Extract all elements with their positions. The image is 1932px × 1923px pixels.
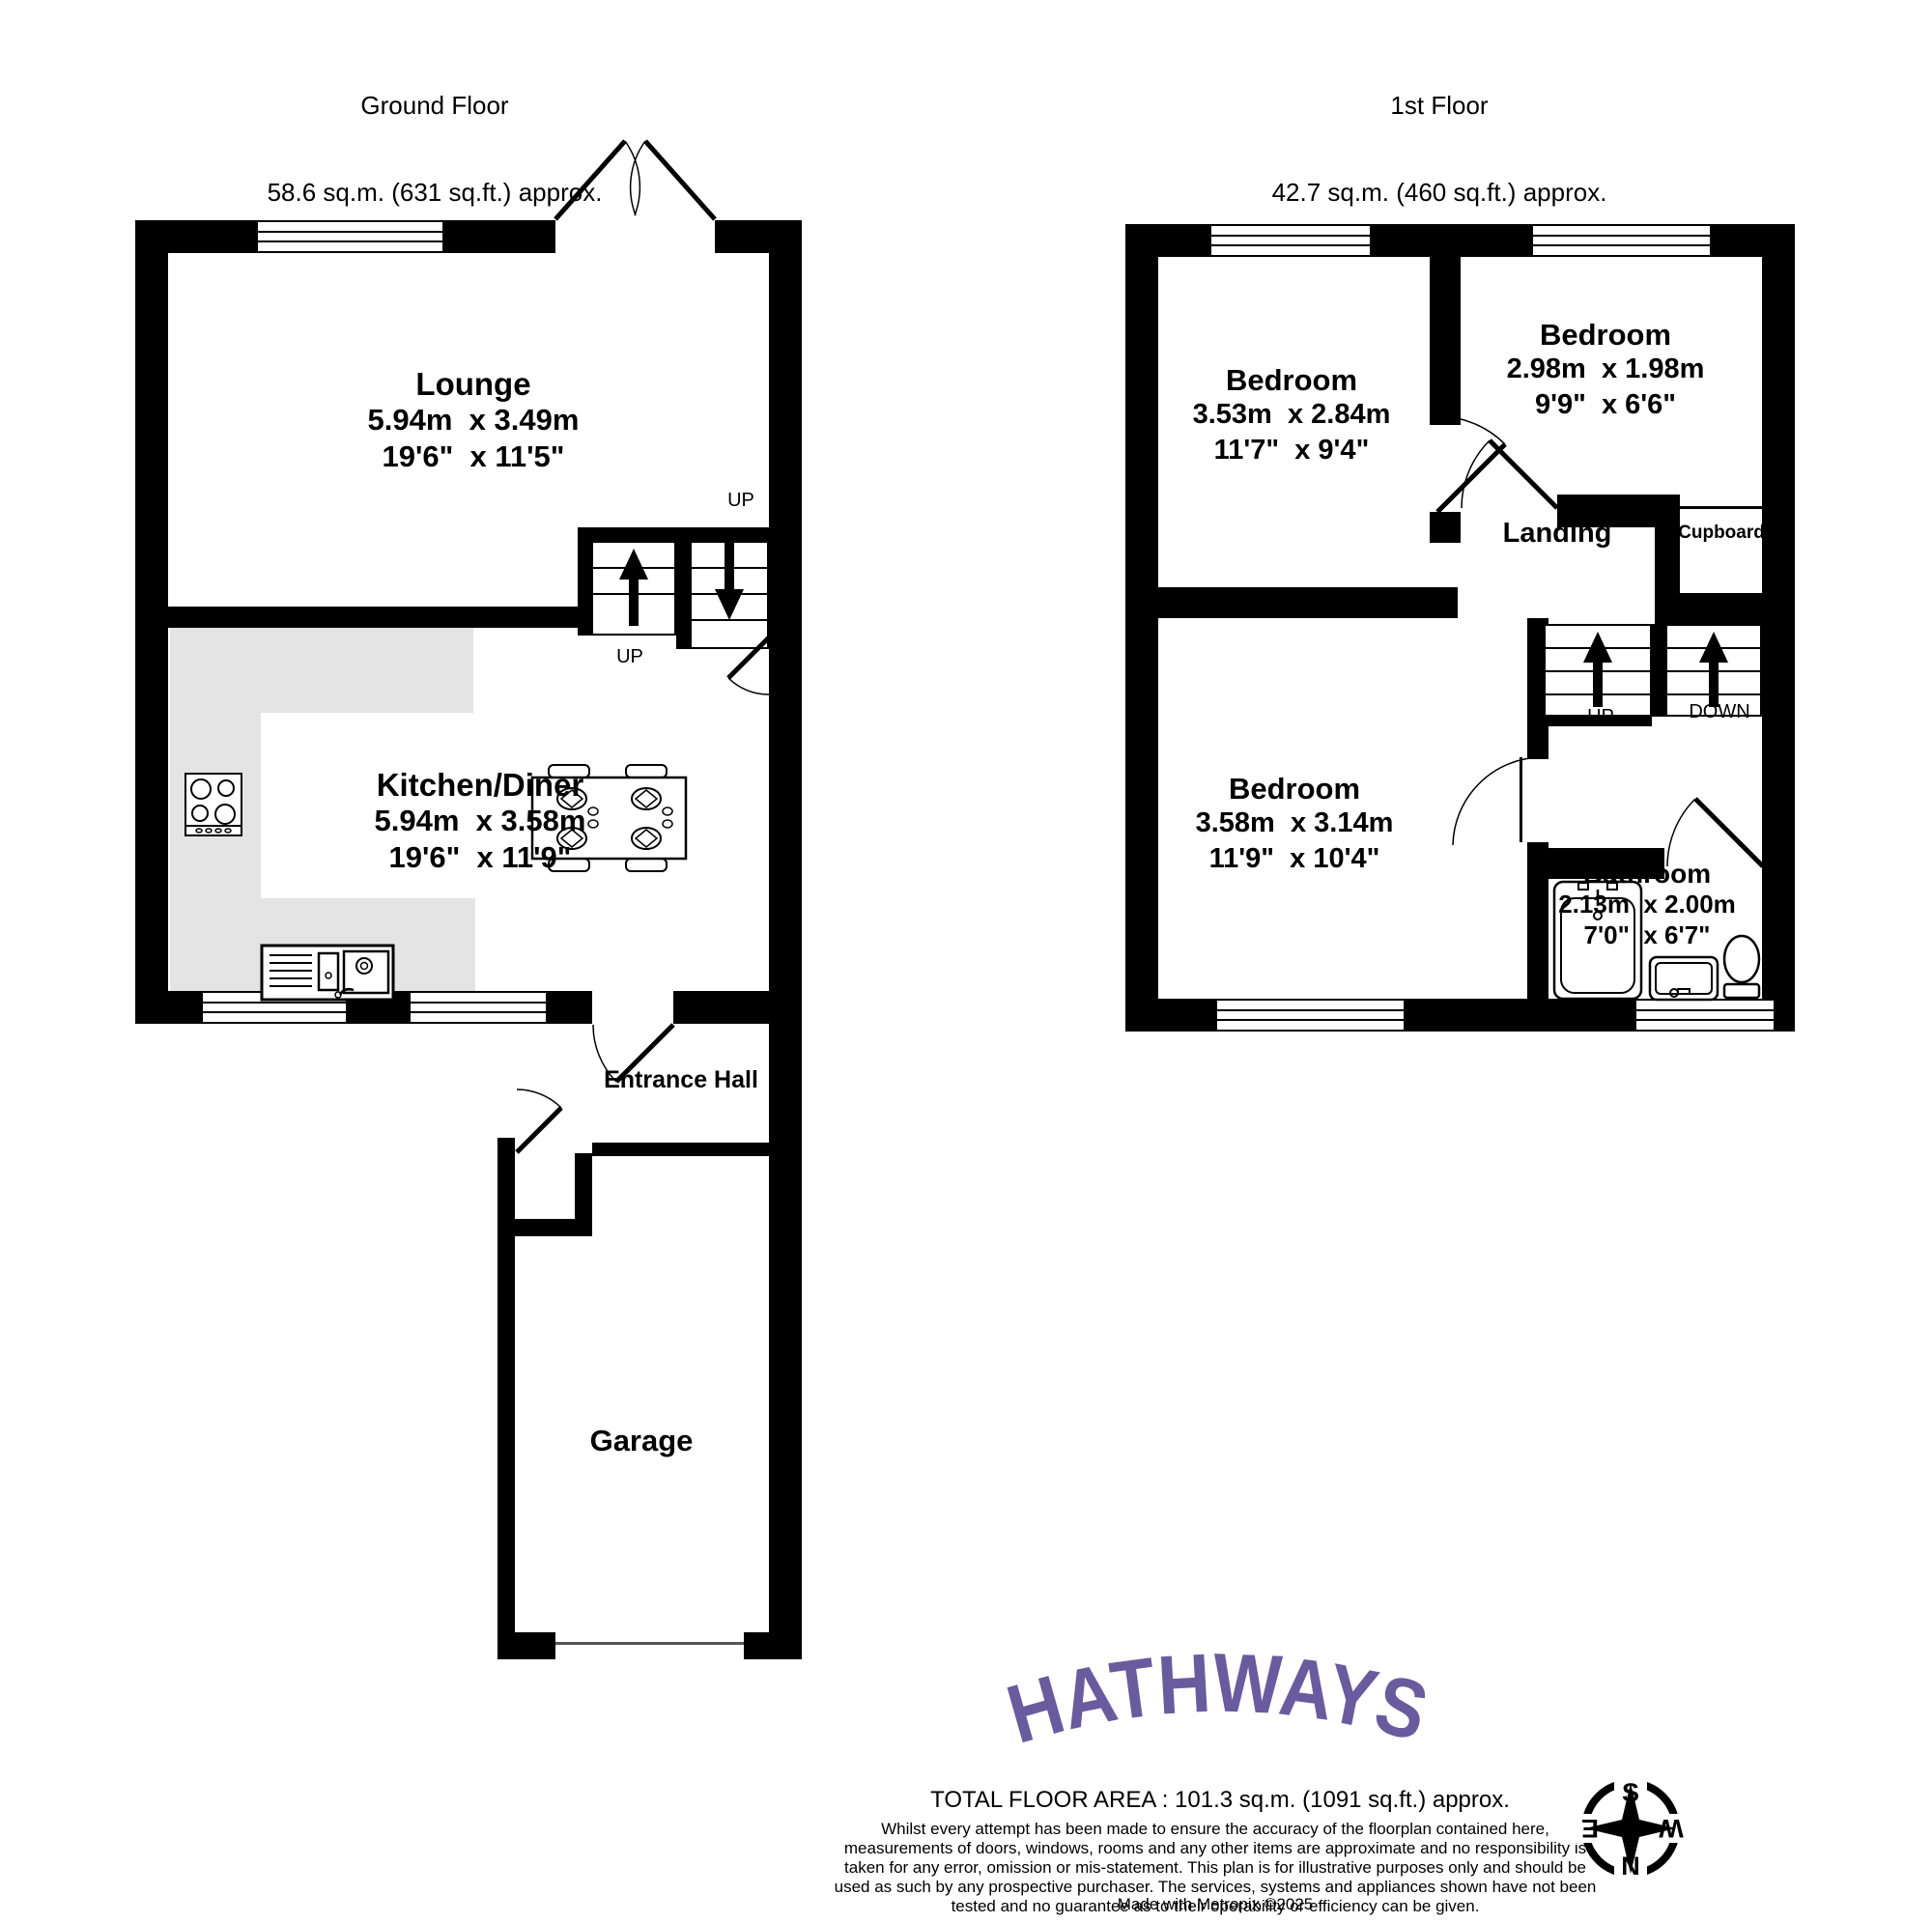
stairs-up-label: UP	[727, 491, 754, 510]
garage-door	[555, 1642, 744, 1645]
bathroom-dimensions-metric: 2.13m x 2.00m	[1558, 891, 1736, 917]
door-swing	[1454, 432, 1562, 514]
window	[256, 220, 444, 253]
wall	[497, 1632, 555, 1659]
door-swing	[1657, 789, 1765, 868]
garage-label: Garage	[590, 1426, 694, 1456]
metropix-credit: Made with Metropix ©2025	[1118, 1895, 1313, 1914]
first-floor-plan: Bedroom 3.53m x 2.84m 11'7" x 9'4" Bedro…	[1125, 224, 1795, 1032]
first-floor-title: 1st Floor	[1272, 91, 1607, 120]
entrance-hall-label: Entrance Hall	[604, 1068, 758, 1092]
wall	[1372, 224, 1531, 257]
wall	[1125, 999, 1215, 1032]
wall	[673, 991, 769, 1024]
compass-south: S	[1622, 1778, 1639, 1807]
wall	[1655, 593, 1795, 624]
front-door-swing	[515, 1085, 582, 1158]
compass-east: E	[1581, 1814, 1599, 1843]
hob	[185, 773, 242, 836]
down-arrow-icon	[714, 539, 745, 622]
compass-north: N	[1621, 1852, 1640, 1881]
ground-floor-header: Ground Floor 58.6 sq.m. (631 sq.ft.) app…	[268, 33, 603, 236]
total-floor-area: TOTAL FLOOR AREA : 101.3 sq.m. (1091 sq.…	[930, 1787, 1510, 1814]
wall	[1158, 587, 1429, 618]
wall	[497, 1138, 515, 1659]
window	[1634, 999, 1776, 1032]
wall	[135, 991, 201, 1024]
floorplan-page: { "ground_floor": { "header": { "title":…	[0, 0, 1932, 1923]
hathways-logo-text: HATHWAYS	[998, 1636, 1437, 1762]
ground-floor-title: Ground Floor	[268, 91, 603, 120]
up-arrow-icon	[618, 547, 649, 630]
wall	[769, 220, 802, 1659]
wall	[1776, 999, 1795, 1032]
compass-west: W	[1659, 1814, 1684, 1843]
bedroom1-dimensions-imperial: 11'7" x 9'4"	[1214, 437, 1370, 465]
wall	[578, 527, 591, 636]
window	[1215, 999, 1406, 1032]
first-floor-area: 42.7 sq.m. (460 sq.ft.) approx.	[1272, 178, 1607, 207]
door-swing	[592, 1024, 675, 1107]
wall	[444, 220, 555, 253]
ground-floor-plan: Lounge 5.94m x 3.49m 19'6" x 11'5" UP UP…	[135, 220, 802, 1669]
window	[409, 991, 548, 1024]
wall	[1429, 587, 1458, 618]
kitchen-diner-label: Kitchen/Diner	[377, 769, 584, 801]
wall	[1652, 624, 1665, 717]
bedroom1-label: Bedroom	[1226, 365, 1357, 395]
wall	[1762, 224, 1795, 1032]
wall	[168, 607, 578, 628]
hathways-logo: HATHWAYS	[1007, 1630, 1436, 1766]
up-arrow-icon	[1698, 630, 1729, 711]
bedroom2-label: Bedroom	[1540, 320, 1671, 350]
kitchen-sink	[261, 945, 394, 1001]
window	[1531, 224, 1712, 257]
bedroom3-dimensions-imperial: 11'9" x 10'4"	[1209, 845, 1380, 873]
lounge-label: Lounge	[415, 368, 530, 400]
wall	[497, 1219, 592, 1236]
bathroom-label: Bathroom	[1583, 861, 1711, 888]
wall	[548, 991, 592, 1024]
bedroom1-dimensions-metric: 3.53m x 2.84m	[1193, 401, 1391, 429]
lounge-dimensions-metric: 5.94m x 3.49m	[368, 405, 580, 435]
basin	[1649, 956, 1719, 1001]
wall	[1430, 257, 1461, 425]
cupboard-label: Cupboard	[1678, 523, 1765, 542]
wall	[135, 220, 168, 1024]
kitchen-diner-dimensions-imperial: 19'6" x 11'9"	[389, 842, 572, 872]
bedroom3-label: Bedroom	[1229, 774, 1360, 804]
lounge-dimensions-imperial: 19'6" x 11'5"	[383, 441, 565, 471]
wall	[1406, 999, 1634, 1032]
kitchen-diner-dimensions-metric: 5.94m x 3.58m	[375, 806, 586, 835]
up-arrow-icon	[1582, 630, 1613, 711]
bedroom2-dimensions-metric: 2.98m x 1.98m	[1507, 355, 1705, 383]
bedroom3-dimensions-metric: 3.58m x 3.14m	[1196, 809, 1394, 837]
french-doors	[555, 138, 715, 221]
landing-label: Landing	[1503, 520, 1612, 548]
door-swing	[724, 636, 782, 697]
bedroom2-dimensions-imperial: 9'9" x 6'6"	[1535, 391, 1676, 419]
wall	[592, 1143, 769, 1156]
window	[1209, 224, 1372, 257]
wall	[676, 527, 690, 649]
wall	[744, 1632, 802, 1659]
wall	[1527, 842, 1548, 1006]
compass-icon: S N E W	[1558, 1756, 1703, 1901]
stairs-down-label: DOWN	[1689, 702, 1749, 721]
first-floor-header: 1st Floor 42.7 sq.m. (460 sq.ft.) approx…	[1272, 33, 1607, 236]
cupboard-door	[1680, 506, 1762, 509]
stairs-up-label: UP	[1587, 707, 1614, 726]
wall	[1125, 224, 1158, 1032]
door-swing	[1451, 755, 1543, 847]
stairs-up-label: UP	[616, 647, 643, 666]
toilet	[1722, 934, 1761, 1000]
ground-floor-area: 58.6 sq.m. (631 sq.ft.) approx.	[268, 178, 603, 207]
bathroom-dimensions-imperial: 7'0" x 6'7"	[1584, 922, 1711, 947]
